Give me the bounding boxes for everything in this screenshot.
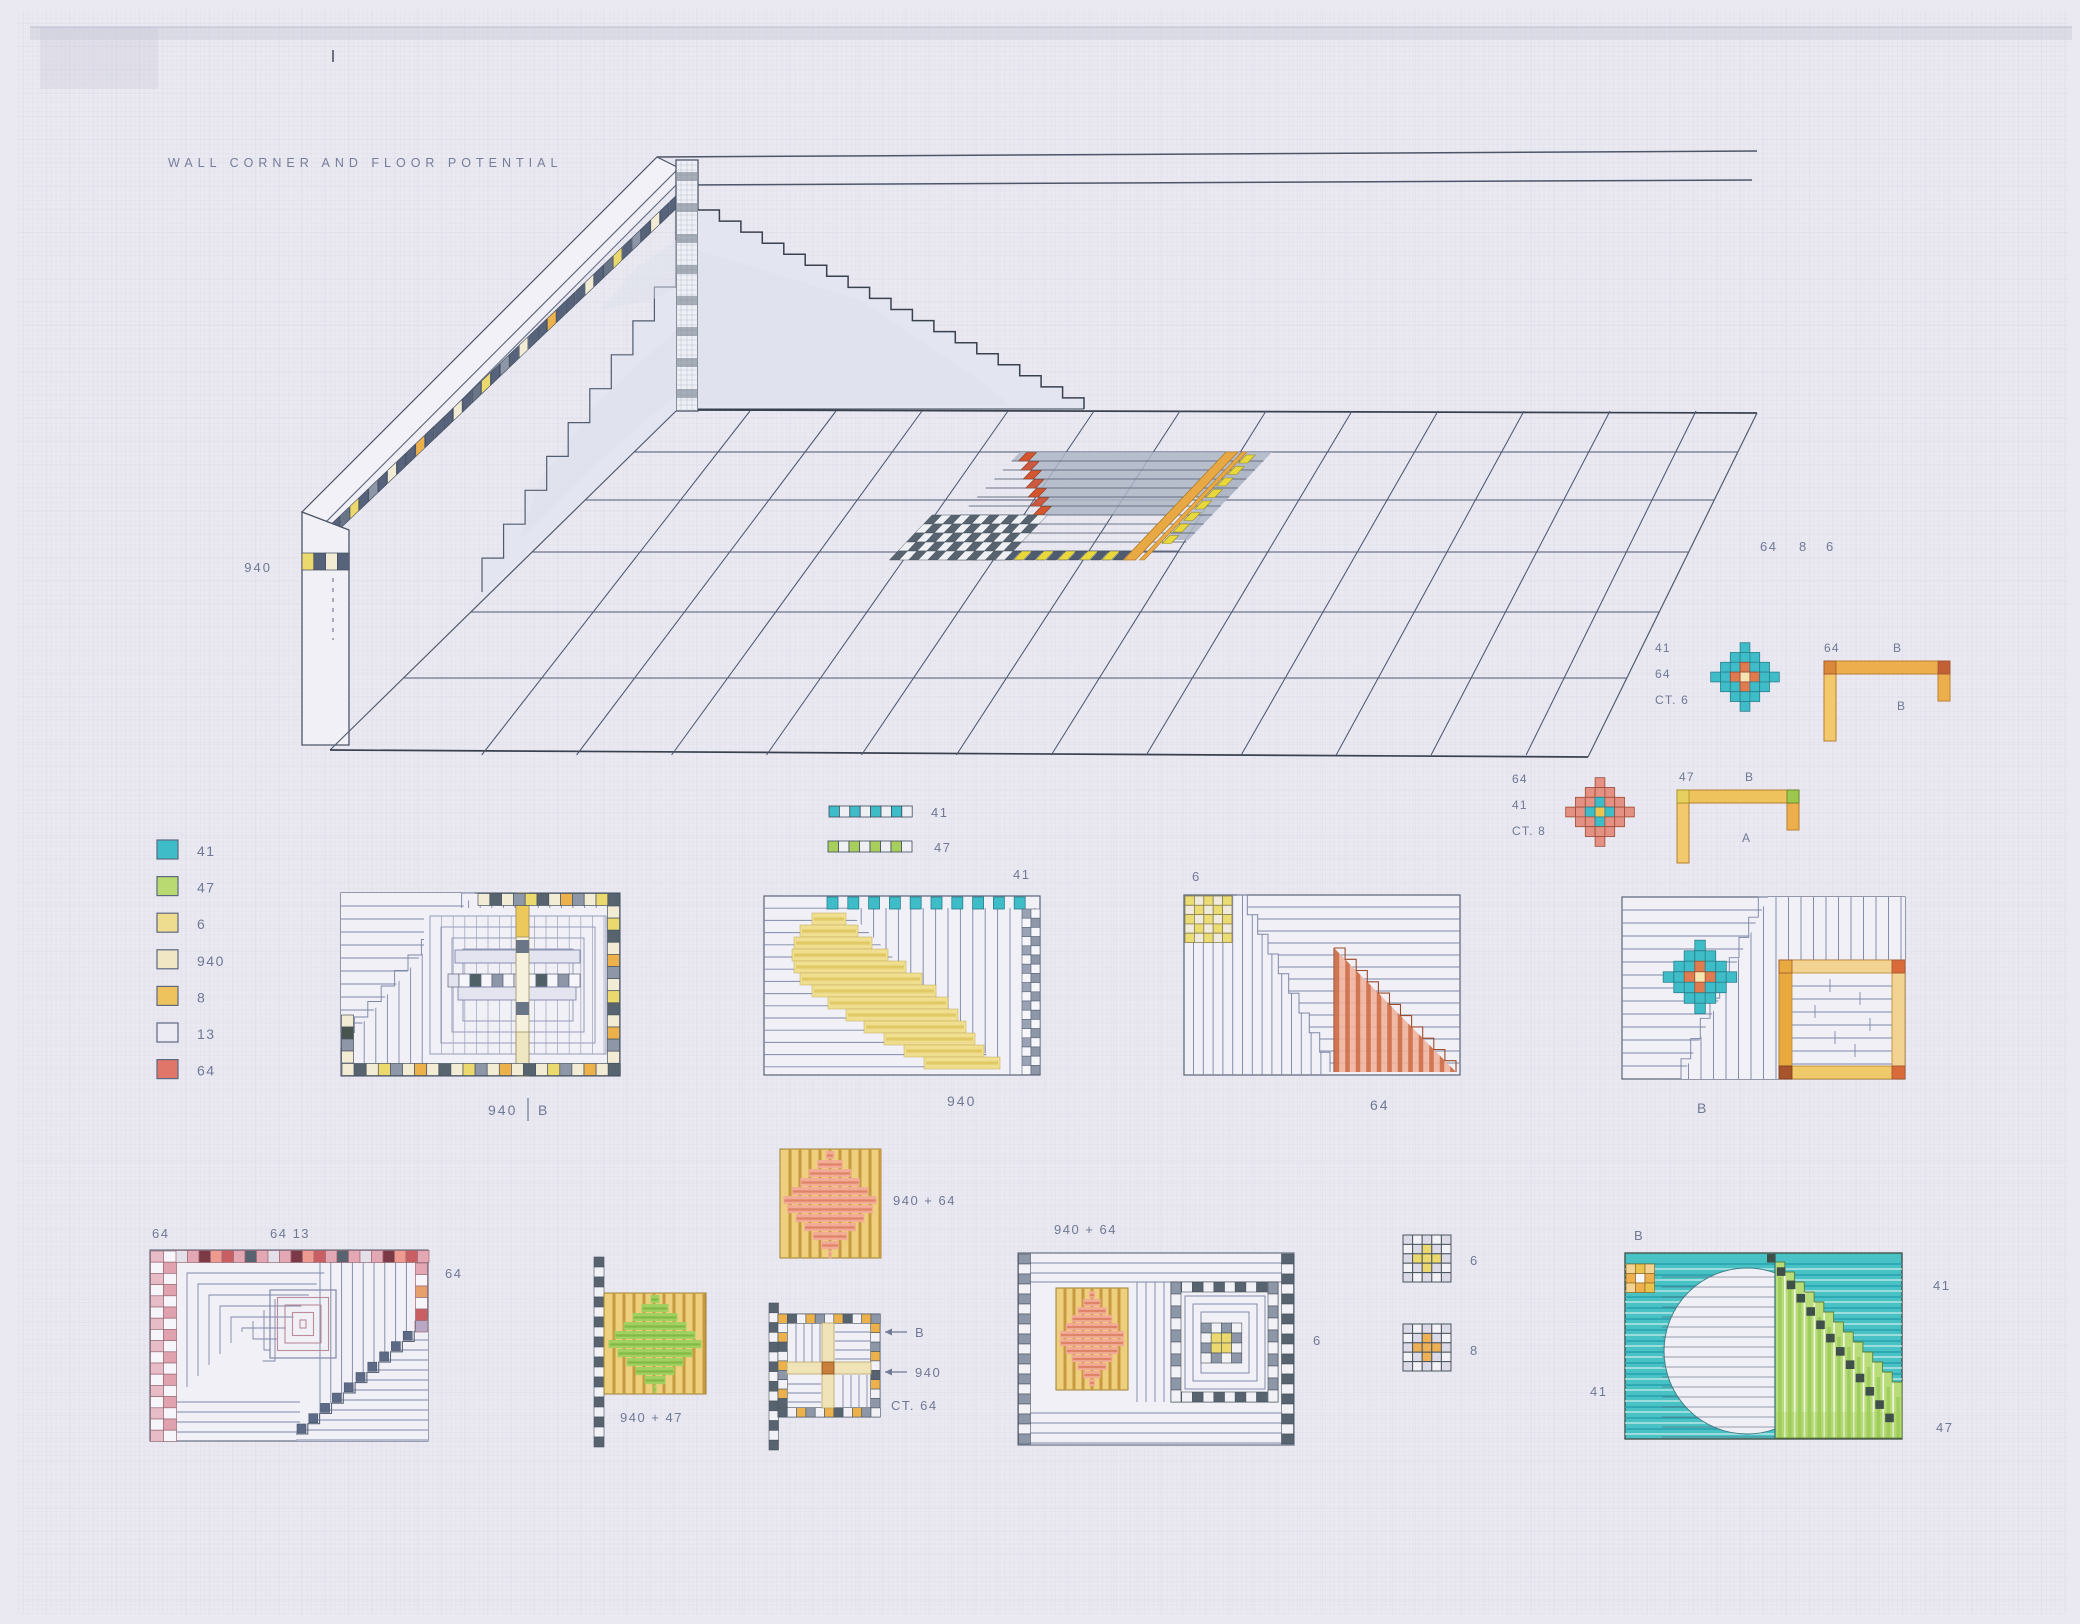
svg-text:940: 940 [915,1365,941,1380]
svg-text:WALL CORNER AND FLOOR POTENTIA: WALL CORNER AND FLOOR POTENTIAL [168,156,562,170]
svg-text:6: 6 [1470,1253,1479,1268]
svg-text:47: 47 [934,840,951,855]
svg-text:64: 64 [1512,772,1528,786]
svg-text:CT. 8: CT. 8 [1512,824,1546,838]
svg-text:64: 64 [152,1226,169,1241]
svg-text:B: B [538,1102,549,1118]
svg-text:940 + 47: 940 + 47 [620,1410,683,1425]
svg-text:CT. 64: CT. 64 [891,1398,938,1413]
svg-text:8: 8 [1470,1343,1479,1358]
svg-text:B: B [1893,641,1902,655]
svg-text:940 + 64: 940 + 64 [893,1193,956,1208]
svg-text:940: 940 [488,1102,517,1118]
svg-text:940 + 64: 940 + 64 [1054,1222,1117,1237]
svg-text:A: A [1742,831,1751,845]
svg-text:41: 41 [1933,1278,1950,1293]
svg-text:41: 41 [1512,798,1528,812]
svg-text:41: 41 [1013,867,1030,882]
svg-text:6: 6 [1826,539,1835,554]
svg-text:64: 64 [1760,539,1777,554]
svg-text:41: 41 [1590,1384,1607,1399]
svg-text:64: 64 [1824,641,1840,655]
svg-text:8: 8 [1799,539,1808,554]
svg-text:64 13: 64 13 [270,1226,310,1241]
svg-text:64: 64 [197,1063,216,1079]
svg-text:47: 47 [197,880,216,896]
svg-text:41: 41 [931,805,948,820]
svg-text:41: 41 [1655,641,1671,655]
svg-text:8: 8 [197,989,206,1005]
svg-text:940: 940 [197,953,225,969]
svg-text:47: 47 [1936,1420,1953,1435]
svg-text:64: 64 [1370,1097,1390,1113]
svg-text:CT. 6: CT. 6 [1655,693,1689,707]
svg-text:47: 47 [1679,770,1695,784]
svg-text:13: 13 [197,1026,216,1042]
svg-text:B: B [1634,1228,1644,1243]
svg-text:940: 940 [947,1093,976,1109]
svg-text:64: 64 [445,1266,462,1281]
svg-text:41: 41 [197,843,216,859]
svg-text:64: 64 [1655,667,1671,681]
svg-text:6: 6 [197,916,206,932]
svg-text:B: B [1697,1100,1708,1116]
svg-text:B: B [915,1325,925,1340]
svg-text:6: 6 [1313,1333,1322,1348]
svg-text:940: 940 [244,560,272,575]
svg-text:B: B [1897,699,1906,713]
svg-text:6: 6 [1192,869,1201,884]
svg-text:B: B [1745,770,1754,784]
